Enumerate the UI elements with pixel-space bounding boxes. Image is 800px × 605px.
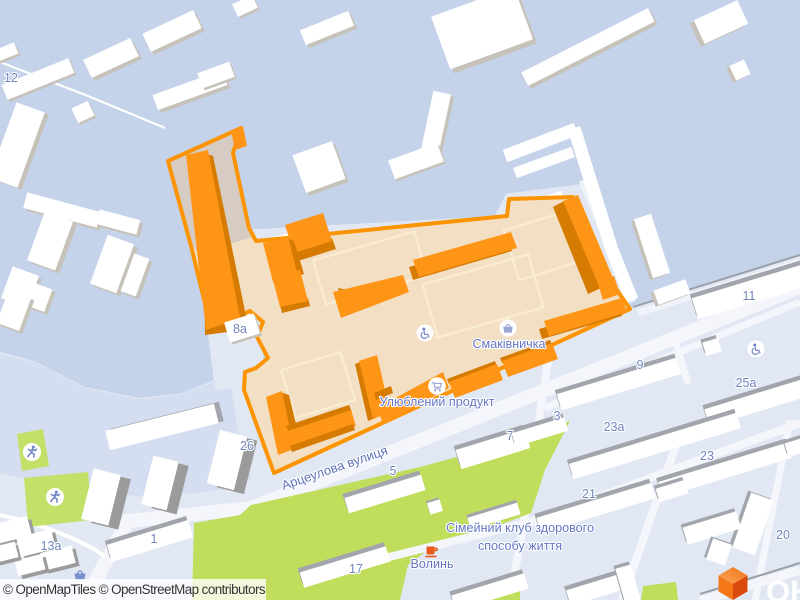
svg-text:9: 9: [637, 358, 644, 372]
svg-text:Сімейний клуб здорового: Сімейний клуб здорового: [446, 521, 594, 535]
svg-text:Улюблений продукт: Улюблений продукт: [379, 395, 494, 409]
svg-text:1: 1: [151, 532, 158, 546]
svg-text:Волинь: Волинь: [410, 557, 453, 571]
svg-text:Смаківничка: Смаківничка: [472, 337, 545, 351]
svg-text:21: 21: [582, 487, 596, 501]
svg-text:25a: 25a: [736, 376, 757, 390]
svg-text:5: 5: [390, 464, 397, 478]
svg-text:7: 7: [507, 429, 514, 443]
svg-text:11: 11: [743, 289, 756, 303]
svg-text:23a: 23a: [604, 420, 625, 434]
svg-text:20: 20: [776, 528, 790, 542]
svg-text:3: 3: [554, 409, 561, 423]
svg-text:17: 17: [349, 562, 363, 576]
svg-text:12: 12: [4, 71, 18, 85]
svg-text:способу життя: способу життя: [478, 539, 562, 553]
svg-text:23: 23: [700, 449, 714, 463]
svg-text:26: 26: [240, 439, 254, 453]
svg-text:13a: 13a: [41, 539, 62, 553]
svg-text:ОН: ОН: [766, 574, 800, 600]
svg-text:8a: 8a: [233, 322, 247, 336]
svg-text:© OpenMapTiles © OpenStreetMap: © OpenMapTiles © OpenStreetMap contribut…: [3, 582, 266, 597]
